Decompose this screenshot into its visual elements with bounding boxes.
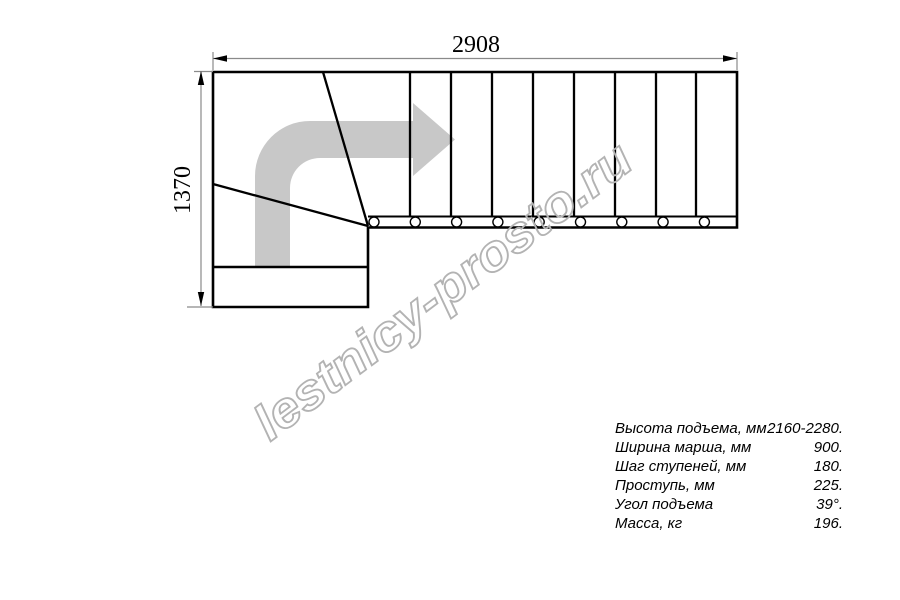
baluster-circle [369, 217, 379, 227]
spec-row-angle: Угол подъема 39°. [615, 496, 843, 515]
spec-value: 39°. [816, 496, 843, 515]
spec-value: 2160-2280. [767, 420, 843, 439]
dimension-arrow-up-icon [198, 71, 204, 85]
dimension-left: 1370 [170, 71, 213, 307]
winder-line [213, 184, 368, 226]
spec-value: 225. [814, 477, 843, 496]
spec-row-tread: Проступь, мм 225. [615, 477, 843, 496]
dimension-top: 2908 [213, 32, 737, 70]
dimension-arrow-left-icon [213, 55, 227, 61]
stair-drawing-page: 2908 1370 lestnicy-prosto.ru Высота подъ… [0, 0, 900, 600]
spec-value: 196. [814, 515, 843, 534]
watermark-text: lestnicy-prosto.ru [243, 130, 642, 450]
baluster-circle [410, 217, 420, 227]
baluster-circle [658, 217, 668, 227]
spec-label: Ширина марша, мм [615, 439, 751, 458]
spec-label: Проступь, мм [615, 477, 715, 496]
baluster-circle [617, 217, 627, 227]
baluster-circle [699, 217, 709, 227]
spec-label: Угол подъема [615, 496, 713, 515]
baluster-circle [452, 217, 462, 227]
dimension-label-top: 2908 [452, 32, 500, 58]
spec-row-mass: Масса, кг 196. [615, 515, 843, 534]
spec-row-height: Высота подъема, мм 2160-2280. [615, 420, 843, 439]
spec-label: Масса, кг [615, 515, 682, 534]
spec-label: Шаг ступеней, мм [615, 458, 746, 477]
spec-label: Высота подъема, мм [615, 420, 767, 439]
dimension-arrow-right-icon [723, 55, 737, 61]
spec-value: 180. [814, 458, 843, 477]
dimension-arrow-down-icon [198, 292, 204, 306]
spec-row-step-rise: Шаг ступеней, мм 180. [615, 458, 843, 477]
dimension-label-left: 1370 [170, 166, 196, 214]
spec-row-flight-width: Ширина марша, мм 900. [615, 439, 843, 458]
spec-value: 900. [814, 439, 843, 458]
specs-table: Высота подъема, мм 2160-2280. Ширина мар… [615, 420, 843, 533]
